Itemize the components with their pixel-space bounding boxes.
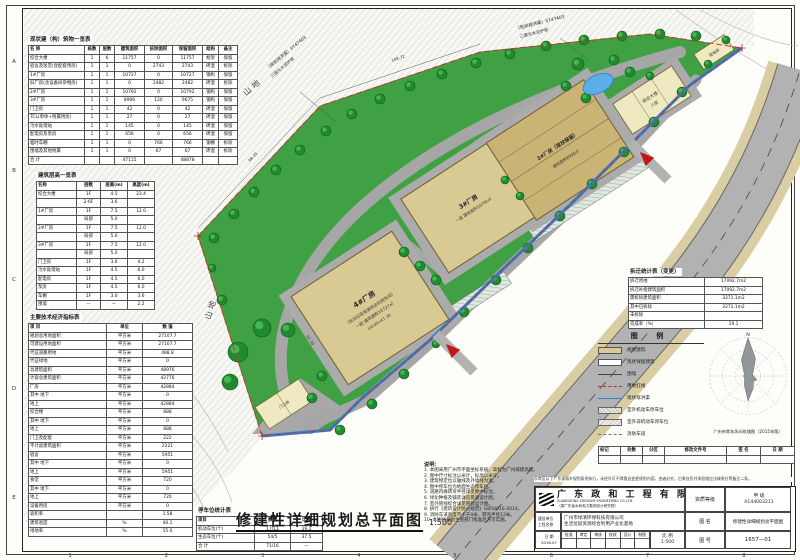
cell: 10792: [173, 88, 203, 97]
cell: 1F: [77, 241, 101, 250]
cell: 42: [173, 105, 203, 114]
bike-parking-swatch-icon: [598, 419, 622, 426]
cell: 结构: [203, 46, 219, 55]
cell: 42884: [143, 383, 193, 392]
cell: 代征道路用地: [29, 349, 107, 358]
cell: 5.0: [101, 233, 128, 242]
cell: %: [107, 519, 143, 528]
cell: 5951: [143, 468, 193, 477]
cell: 766: [173, 139, 203, 148]
cell: 保留: [219, 131, 238, 140]
cell: 1: [85, 122, 100, 131]
cell: 拆迁补偿建筑面积: [629, 286, 705, 295]
cell: 平方米: [107, 400, 143, 409]
cell: 门卫房: [29, 105, 85, 114]
owner-labels: 建设单位 工程名称: [535, 512, 561, 531]
cell: 6.0: [128, 275, 155, 284]
existing-building-swatch-icon: [598, 359, 622, 366]
cell: 修改文件号: [665, 447, 727, 456]
project-name: 生活垃圾资源综合利用产业化基地: [564, 522, 684, 528]
cell: [37, 250, 77, 259]
cell: 砖混: [203, 131, 219, 140]
cell: 污水处理站: [37, 267, 77, 276]
cell: 平方米: [107, 366, 143, 375]
signature-cell: 设计: [621, 532, 636, 548]
cell: 3.6: [128, 292, 155, 301]
cell: 1.58: [143, 511, 193, 520]
cell: 1: [85, 114, 100, 123]
cell: 拆除: [219, 63, 238, 72]
cell: 平方米: [107, 383, 143, 392]
cell: 1: [85, 54, 100, 63]
cell: 8906: [115, 97, 145, 106]
cell: 平方米: [107, 375, 143, 384]
company-cell: 广 东 政 和 工 程 有 限 公 司 GUANGDONG ZHENGHE EN…: [535, 487, 685, 512]
cell: 不计容建筑面积: [29, 443, 107, 452]
cell: 平方米: [107, 443, 143, 452]
cell: 层数: [100, 46, 115, 55]
signature-cell: 制图: [635, 532, 650, 548]
cell: 3.6: [101, 199, 128, 208]
cell: 17092.7m2: [705, 286, 763, 295]
cert-number: A144003211: [728, 500, 790, 506]
cell: 拆除: [219, 80, 238, 89]
cell: 平方米: [107, 485, 143, 494]
cell: 27107.7: [143, 332, 193, 341]
cell: 5951: [143, 451, 193, 460]
cell: 120: [145, 97, 173, 106]
north-label: N: [746, 332, 750, 338]
legend-item: 用地红线: [598, 380, 704, 392]
cell: 12.0: [128, 224, 155, 233]
grade-cell: 甲 级 A144003211: [725, 487, 791, 512]
tree-highlight-icon: [318, 372, 323, 377]
legend: 图 例 规划建筑 现状保留建筑 围墙 用地红线 现状排洪渠 室外机动车停车位 室…: [598, 331, 704, 440]
cell: 27107.7: [143, 341, 193, 350]
cell: 4.2: [128, 258, 155, 267]
cell: 围墙及其他附属: [29, 148, 85, 157]
cell: 54/5: [255, 534, 291, 543]
titleblock-note: 水库区以下广东省城乡规划条例执行，未经许可不得擅自变更规划内容，违者必究，后果自…: [534, 477, 794, 482]
cell: 0: [115, 139, 145, 148]
fire-lane-line-icon: [598, 434, 622, 435]
cell: [128, 233, 155, 242]
cell: [107, 511, 143, 520]
tree-highlight-icon: [626, 68, 631, 73]
cell: 门卫房: [37, 258, 77, 267]
cell: 1F: [77, 275, 101, 284]
cell: 项 目: [29, 324, 107, 333]
legend-item: 围墙: [598, 368, 704, 380]
cell: 0: [145, 131, 173, 140]
cell: 1: [100, 97, 115, 106]
cell: 10727: [115, 71, 145, 80]
cell: 0: [115, 148, 145, 157]
cell: 未拆除: [629, 312, 705, 321]
cell: 地上: [29, 494, 107, 503]
cell: 0: [143, 417, 193, 426]
cell: 2482: [173, 80, 203, 89]
cell: 综合大楼: [29, 54, 85, 63]
tree-highlight-icon: [472, 59, 477, 64]
cell: 7.5: [101, 241, 128, 250]
cell: 合 计: [197, 542, 255, 551]
tree-highlight-icon: [231, 345, 240, 354]
signature-label: 审核: [591, 532, 605, 539]
owner-project-cell: 广州市绿清环保科技有限公司 生活垃圾资源综合利用产业化基地: [561, 512, 685, 531]
signature-label: 设计: [621, 532, 635, 539]
cell: 145: [115, 122, 145, 131]
cell: 37.5: [291, 534, 323, 543]
cell: 栋数: [85, 46, 100, 55]
cell: 容积率: [29, 511, 107, 520]
cell: 保留: [219, 54, 238, 63]
tree-highlight-icon: [610, 56, 615, 61]
legend-title: 图 例: [598, 331, 704, 344]
legend-item: 室外非机动车停车位: [598, 416, 704, 428]
cell: 名 称: [29, 46, 85, 55]
list-item: A: [7, 8, 21, 117]
cell: 3#厂房: [29, 97, 85, 106]
tree-highlight-icon: [574, 60, 579, 65]
cell: 1: [100, 148, 115, 157]
cell: 分区: [643, 447, 665, 456]
tree-highlight-icon: [580, 36, 585, 41]
cell: 1: [100, 63, 115, 72]
cell: 总建筑面积: [29, 366, 107, 375]
cell: 门卫及配套: [29, 434, 107, 443]
grade-label: 资质等级: [685, 487, 725, 512]
cell: 720: [143, 477, 193, 486]
cell: 平方米: [107, 417, 143, 426]
cell: 钢棚: [203, 139, 219, 148]
cell: 污水处理站: [29, 122, 85, 131]
tree-highlight-icon: [692, 32, 697, 37]
cell: 27: [173, 114, 203, 123]
cell: 平方米: [107, 451, 143, 460]
cell: 48878: [173, 156, 203, 165]
cell: 2#厂房: [29, 88, 85, 97]
signature-cell: 审核: [591, 532, 606, 548]
cell: 拆除: [219, 139, 238, 148]
cell: 标记: [599, 447, 621, 456]
cell: 框架: [203, 54, 219, 63]
figure-name-label: 图 名: [685, 512, 725, 531]
grid-letters: ABCDE: [7, 8, 21, 552]
cell: 0: [145, 114, 173, 123]
cell: 1: [85, 105, 100, 114]
cell: 车棚: [37, 292, 77, 301]
red-line-icon: [598, 386, 622, 387]
cell: 平方米: [107, 502, 143, 511]
tree-highlight-icon: [336, 426, 341, 431]
revision-table: 标记处数分区修改文件号签 名日 期: [598, 446, 794, 464]
cell: 砖混: [203, 63, 219, 72]
cell: 3271.1m2: [705, 295, 763, 304]
cell: 1F: [77, 267, 101, 276]
cell: 1: [100, 139, 115, 148]
cell: 1: [85, 71, 100, 80]
cell: 1: [100, 131, 115, 140]
car-parking-swatch-icon: [598, 407, 622, 414]
cell: 平方米: [107, 468, 143, 477]
cell: 11757: [173, 54, 203, 63]
wind-rose-caption: 广州市常年风向玫瑰图（2015年版）: [702, 429, 794, 435]
cell: %: [107, 528, 143, 537]
cell: 平方米: [107, 494, 143, 503]
cell: 1: [100, 80, 115, 89]
cell: 1: [100, 122, 115, 131]
cell: 配电房及泵房: [29, 131, 85, 140]
tree-highlight-icon: [400, 248, 405, 253]
tree-highlight-icon: [224, 376, 231, 383]
figure-number-label: 图 号: [685, 531, 725, 549]
cell: 5.0: [101, 216, 128, 225]
tree-highlight-icon: [433, 341, 437, 345]
list-item: 8: [696, 552, 792, 560]
cell: 4.5: [101, 275, 128, 284]
cell: 67: [173, 148, 203, 157]
signature-label: 制图: [635, 532, 649, 539]
cell: 食堂: [29, 477, 107, 486]
tree-highlight-icon: [368, 400, 373, 405]
cell: 签 名: [727, 447, 761, 456]
signature-cell: 校核: [606, 532, 621, 548]
cell: 保留: [219, 122, 238, 131]
cell: 局部: [77, 216, 101, 225]
legend-item: 现状排洪渠: [598, 392, 704, 404]
cell: 9675: [173, 97, 203, 106]
cell: 设备用房: [29, 502, 107, 511]
tree-highlight-icon: [647, 73, 651, 77]
cell: 数 值: [143, 324, 193, 333]
cell: 1F: [77, 224, 101, 233]
legend-item: 现状保留建筑: [598, 356, 704, 368]
cell: 钢构: [203, 88, 219, 97]
cell: 处数: [621, 447, 643, 456]
cell: [128, 199, 155, 208]
demolition-table: 拆迁统计表（变更） 拆迁用地17092.7m2拆迁补偿建筑面积17092.7m2…: [628, 258, 762, 329]
date-cell: 日 期 2016.07: [535, 531, 561, 549]
cell: 泵房: [37, 284, 77, 293]
tree-highlight-icon: [723, 37, 727, 41]
cell: 888: [143, 409, 193, 418]
tree-highlight-icon: [348, 110, 353, 115]
cell: 其中 地下: [29, 417, 107, 426]
company-subtitle: （原广东省水利电力勘测设计研究院）: [557, 504, 685, 508]
scale-cell: 比 例 1:500: [650, 532, 684, 548]
legend-item: 规划建筑: [598, 344, 704, 356]
building-list-table: 现状建（构）筑物一览表 名 称栋数层数建筑面积拆除面积保留面积结构备注 综合大楼…: [28, 26, 237, 165]
cell: 平方米: [107, 409, 143, 418]
cell: 保留: [219, 88, 238, 97]
list-item: D: [7, 334, 21, 443]
planned-building-swatch-icon: [598, 347, 622, 354]
cell: 地上: [29, 468, 107, 477]
cell: 保留: [219, 71, 238, 80]
cell: 其中已拆除: [629, 303, 705, 312]
cell: 1: [85, 97, 100, 106]
cell: 7.5: [101, 224, 128, 233]
cell: [37, 216, 77, 225]
cell: 砖混: [203, 114, 219, 123]
cell: 局部: [77, 233, 101, 242]
cell: 平方米: [107, 341, 143, 350]
cell: 钢构: [203, 71, 219, 80]
tree-highlight-icon: [308, 394, 313, 399]
figure-name: 修建性详细规划总平面图: [725, 512, 791, 531]
signature-cells: 批准审定审核校核设计制图: [562, 532, 650, 548]
parking-table-title: 停车位统计表: [196, 507, 233, 515]
econ-table-title: 主要技术经济指标表: [28, 314, 82, 322]
cell: 4.5: [101, 190, 128, 199]
cell: 3#厂房: [37, 241, 77, 250]
cell: 平方米: [107, 460, 143, 469]
cell: 656: [173, 131, 203, 140]
cell: 5.0: [101, 250, 128, 259]
cell: 1: [100, 71, 115, 80]
cell: 17092.7m2: [705, 278, 763, 287]
tree-highlight-icon: [506, 50, 511, 55]
cell: 888: [143, 426, 193, 435]
cell: 71/16: [255, 542, 291, 551]
cell: 配电房: [37, 275, 77, 284]
tree-highlight-icon: [438, 70, 443, 75]
cell: 67: [145, 148, 173, 157]
cell: 23.4: [128, 190, 155, 199]
cell: 单位: [107, 324, 143, 333]
figure-number: 1657—01: [725, 531, 791, 549]
cell: 1: [85, 80, 100, 89]
list-item: B: [7, 117, 21, 226]
cell: 0: [143, 392, 193, 401]
drawing-title: 修建性详细规划总平面图1:500: [236, 509, 452, 530]
tree-highlight-icon: [322, 127, 327, 132]
cell: 1: [100, 105, 115, 114]
legend-item: 消防车道: [598, 428, 704, 440]
cell: 高度(m): [128, 182, 155, 191]
cell: 其中 地下: [29, 392, 107, 401]
cell: 代征绿地: [29, 358, 107, 367]
cell: 1F: [77, 284, 101, 293]
cell: 1: [85, 88, 100, 97]
cell: 0: [145, 122, 173, 131]
cell: 宿舍及饭堂(含配套用房): [29, 63, 85, 72]
signature-label: 批准: [562, 532, 576, 539]
list-item: 1: [22, 552, 118, 560]
cell: 1F: [77, 292, 101, 301]
cell: [705, 312, 763, 321]
cell: [203, 156, 219, 165]
cell: 拆迁用地: [629, 278, 705, 287]
cell: 0: [145, 71, 173, 80]
cell: 综合楼: [29, 409, 107, 418]
tree-highlight-icon: [230, 210, 235, 215]
tree-highlight-icon: [272, 166, 277, 171]
cell: 11757: [115, 54, 145, 63]
cell: 建筑密度: [29, 519, 107, 528]
cell: [128, 216, 155, 225]
cell: 2482: [145, 80, 173, 89]
cell: 1F: [77, 207, 101, 216]
building-table-title: 现状建（构）筑物一览表: [28, 36, 93, 44]
cell: 42884: [143, 400, 193, 409]
cell: 砖混: [203, 148, 219, 157]
cell: 12.0: [128, 207, 155, 216]
tree-highlight-icon: [210, 234, 215, 239]
cell: 1F: [77, 190, 101, 199]
cell: 3271.1m2: [705, 303, 763, 312]
cell: 0: [143, 485, 193, 494]
cell: 2#厂房: [37, 224, 77, 233]
cell: 1: [100, 114, 115, 123]
cell: 0: [143, 358, 193, 367]
cell: 10727: [173, 71, 203, 80]
signature-label: 校核: [606, 532, 620, 539]
cell: 2743: [173, 63, 203, 72]
cell: 旧厂房(含设备间杂物房): [29, 80, 85, 89]
tree-highlight-icon: [209, 265, 213, 269]
cell: TCL(单体+附属用房): [29, 114, 85, 123]
wind-rose-petal: [741, 338, 756, 401]
list-item: 6: [503, 552, 599, 560]
cell: 生态车位(个): [197, 534, 255, 543]
drawing-sheet: ABCDE 12345678: [0, 0, 800, 560]
cell: [219, 156, 238, 165]
cell: 4.5: [101, 284, 128, 293]
cell: 6: [100, 54, 115, 63]
tree-highlight-icon: [376, 95, 381, 100]
cell: 备注: [219, 46, 238, 55]
signature-cell: 批准: [562, 532, 577, 548]
cell: 720: [143, 494, 193, 503]
cell: 钢构: [203, 97, 219, 106]
list-item: 4: [311, 552, 407, 560]
cell: 保留: [219, 97, 238, 106]
drawing-title-text: 修建性详细规划总平面图: [236, 511, 423, 532]
cell: 40.1: [143, 519, 193, 528]
cell: 4.5: [101, 267, 128, 276]
cell: 平方米: [107, 349, 143, 358]
cell: 6.0: [128, 267, 155, 276]
cell: 局部: [77, 250, 101, 259]
cell: 平方米: [107, 358, 143, 367]
cell: 建筑面积: [115, 46, 145, 55]
cell: 27: [115, 114, 145, 123]
cell: 0: [115, 63, 145, 72]
cell: —: [291, 542, 323, 551]
tree-highlight-icon: [296, 146, 301, 151]
tree-highlight-icon: [432, 276, 437, 281]
list-item: 7: [600, 552, 696, 560]
list-item: E: [7, 443, 21, 552]
cell: 488.8: [143, 349, 193, 358]
cell: 1#厂房: [29, 71, 85, 80]
cell: 保留: [219, 114, 238, 123]
cell: 临时车棚: [29, 139, 85, 148]
cell: 地上: [29, 400, 107, 409]
cell: 完成率（%）: [629, 320, 705, 329]
cell: 平方米: [107, 392, 143, 401]
signature-label: 审定: [577, 532, 591, 539]
cell: 绿地率: [29, 528, 107, 537]
cell: 平方米: [107, 434, 143, 443]
cell: 3.0: [101, 292, 128, 301]
notes-title: 说明：: [424, 461, 600, 468]
tree-highlight-icon: [562, 82, 567, 87]
cell: 地上: [29, 426, 107, 435]
cell: 拆除: [219, 148, 238, 157]
